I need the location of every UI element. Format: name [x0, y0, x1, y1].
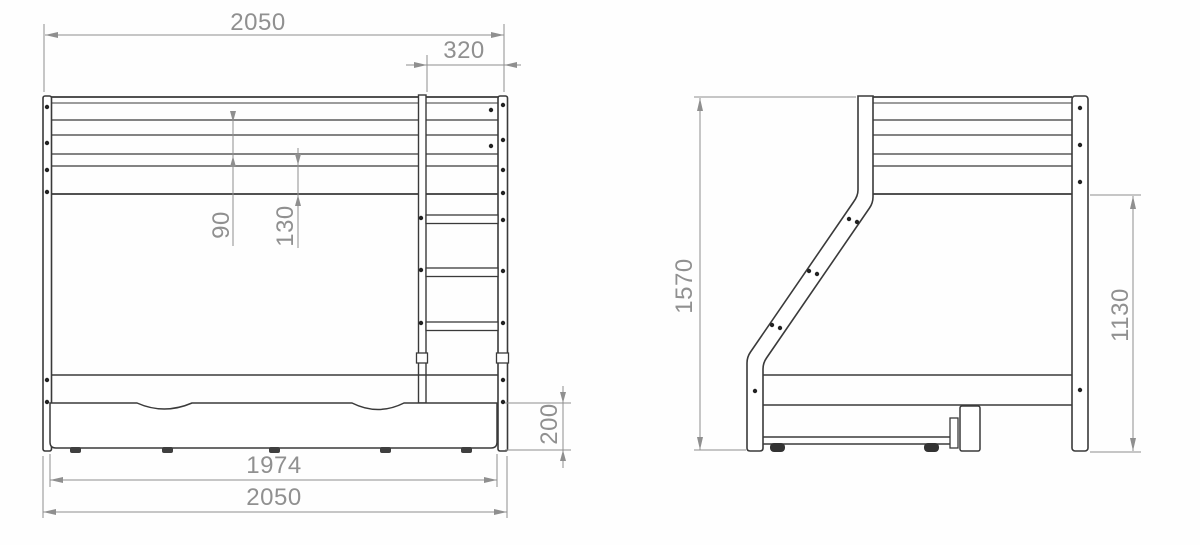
screw-dot — [45, 378, 49, 382]
foot — [380, 447, 391, 453]
screw-dot — [855, 220, 859, 224]
ladder-rung — [426, 268, 498, 277]
screw-dot — [770, 323, 774, 327]
screw-dot — [1078, 143, 1082, 147]
ladder-rung — [426, 322, 498, 331]
screw-dot — [45, 105, 49, 109]
side-view — [747, 96, 1088, 452]
side-bed-board — [763, 375, 1072, 405]
guard-rails — [51, 97, 498, 154]
screw-dot — [489, 108, 493, 112]
screw-dot — [501, 138, 505, 142]
screw-dot — [419, 268, 423, 272]
front-view — [43, 95, 509, 453]
dim-label-rail-gap-lower: 130 — [272, 205, 299, 247]
screw-dot — [489, 144, 493, 148]
side-dimensions: 1570 1130 — [671, 97, 1141, 452]
dim-rail-gap-upper: 90 — [208, 111, 236, 246]
dim-label-drawer-height: 200 — [536, 403, 563, 445]
screw-dot — [45, 400, 49, 404]
dim-overall-width-top: 2050 — [44, 9, 504, 92]
dim-label-overall-width-top: 2050 — [230, 9, 285, 36]
screw-dot — [501, 218, 505, 222]
screw-dot — [501, 321, 505, 325]
dim-rail-gap-lower: 130 — [272, 148, 301, 248]
screw-dot — [847, 217, 851, 221]
upper-bed-deck — [51, 166, 498, 194]
screw-dot — [501, 400, 505, 404]
drawing-sheet: 2050 320 90 130 — [0, 0, 1200, 545]
dim-label-overall-height: 1570 — [671, 258, 698, 313]
angled-post — [747, 96, 873, 451]
storage-drawer — [50, 403, 497, 448]
ladder-rung — [426, 215, 498, 224]
caster-wheel — [924, 443, 939, 452]
side-rails — [873, 97, 1072, 194]
drawer-runner-bracket — [950, 418, 958, 448]
screw-dot — [45, 190, 49, 194]
dim-drawer-width: 1974 — [50, 452, 497, 487]
dim-drawer-height: 200 — [505, 386, 571, 468]
caster-wheel — [770, 443, 785, 452]
screw-dot — [45, 168, 49, 172]
screw-dot — [753, 389, 757, 393]
screw-dot — [45, 141, 49, 145]
screw-dot — [501, 103, 505, 107]
rear-post — [1072, 96, 1088, 451]
front-screws — [45, 103, 505, 404]
dim-under-bunk-height: 1130 — [1090, 195, 1141, 452]
side-drawer — [763, 406, 980, 452]
screw-dot — [807, 269, 811, 273]
screw-dot — [1078, 180, 1082, 184]
screw-dot — [501, 168, 505, 172]
left-post — [43, 96, 52, 451]
drawing-canvas: 2050 320 90 130 — [0, 0, 1200, 545]
screw-dot — [419, 216, 423, 220]
screw-dot — [501, 378, 505, 382]
foot — [162, 447, 173, 453]
screw-dot — [778, 326, 782, 330]
ladder-joint-block — [497, 353, 509, 363]
dim-label-rail-gap-upper: 90 — [208, 211, 235, 239]
ladder-joint-block — [417, 353, 428, 363]
screw-dot — [1078, 106, 1082, 110]
foot — [461, 447, 472, 453]
dim-label-under-bunk-height: 1130 — [1107, 288, 1134, 342]
screw-dot — [419, 321, 423, 325]
dim-label-ladder-width: 320 — [443, 37, 485, 64]
screw-dot — [1078, 388, 1082, 392]
ladder — [417, 95, 509, 403]
dim-label-drawer-width: 1974 — [246, 452, 301, 479]
support-leg — [960, 406, 980, 451]
screw-dot — [501, 269, 505, 273]
dim-label-overall-width-bottom: 2050 — [246, 484, 301, 511]
screw-dot — [815, 272, 819, 276]
side-screws — [753, 106, 1082, 393]
foot — [70, 447, 81, 453]
screw-dot — [501, 191, 505, 195]
right-post — [498, 96, 508, 451]
